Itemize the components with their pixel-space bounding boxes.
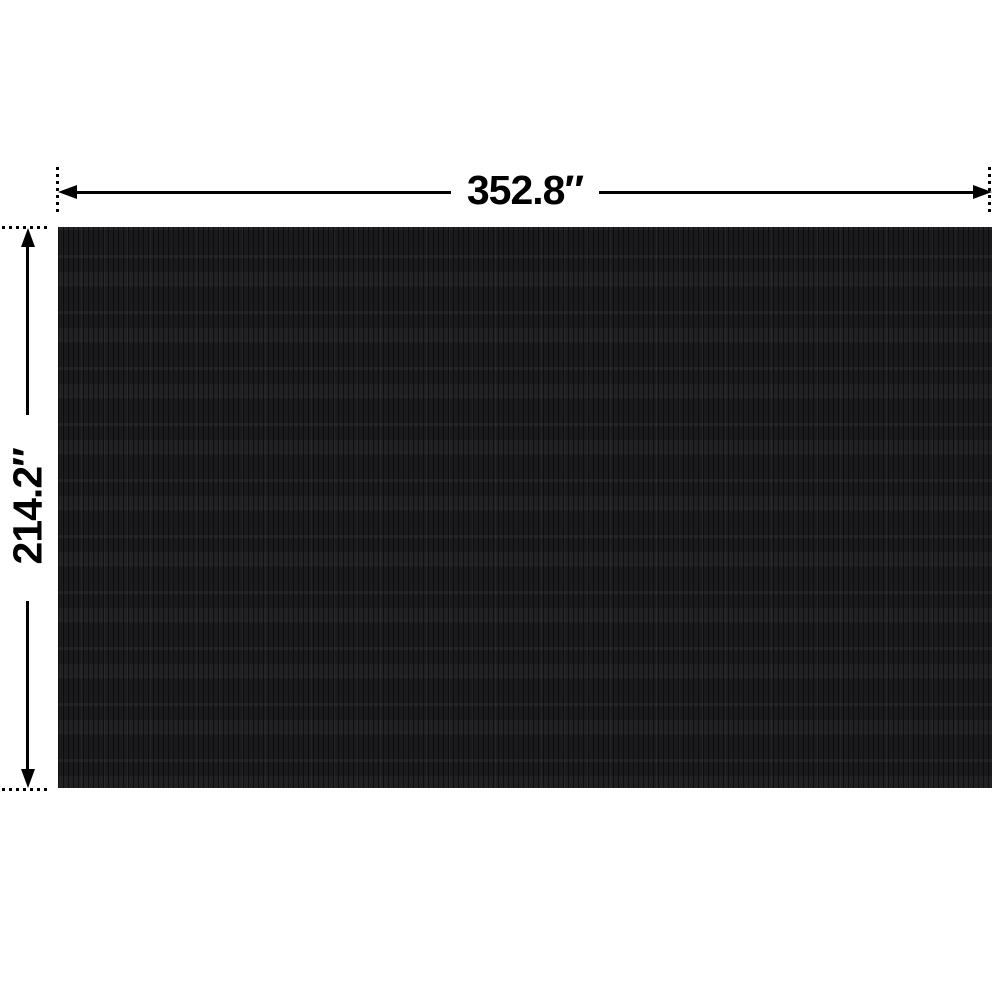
height-dimension: 214.2″ xyxy=(11,228,44,788)
dimension-diagram: 352.8″ 214.2″ xyxy=(0,0,1000,1000)
width-dimension: 352.8″ xyxy=(58,173,992,211)
product-panel xyxy=(58,227,992,788)
width-dimension-line-right xyxy=(599,191,975,194)
arrow-down-icon xyxy=(21,769,35,788)
extension-line-width-left xyxy=(56,167,59,216)
height-dimension-line-top xyxy=(26,245,29,415)
width-dimension-label: 352.8″ xyxy=(467,170,583,211)
extension-line-height-bottom xyxy=(2,788,49,791)
height-dimension-label: 214.2″ xyxy=(7,448,48,564)
height-dimension-label-box: 214.2″ xyxy=(11,415,44,601)
width-dimension-line-left xyxy=(75,191,451,194)
extension-line-height-top xyxy=(2,226,49,229)
extension-line-width-right xyxy=(988,167,991,216)
height-dimension-line-bottom xyxy=(26,601,29,771)
